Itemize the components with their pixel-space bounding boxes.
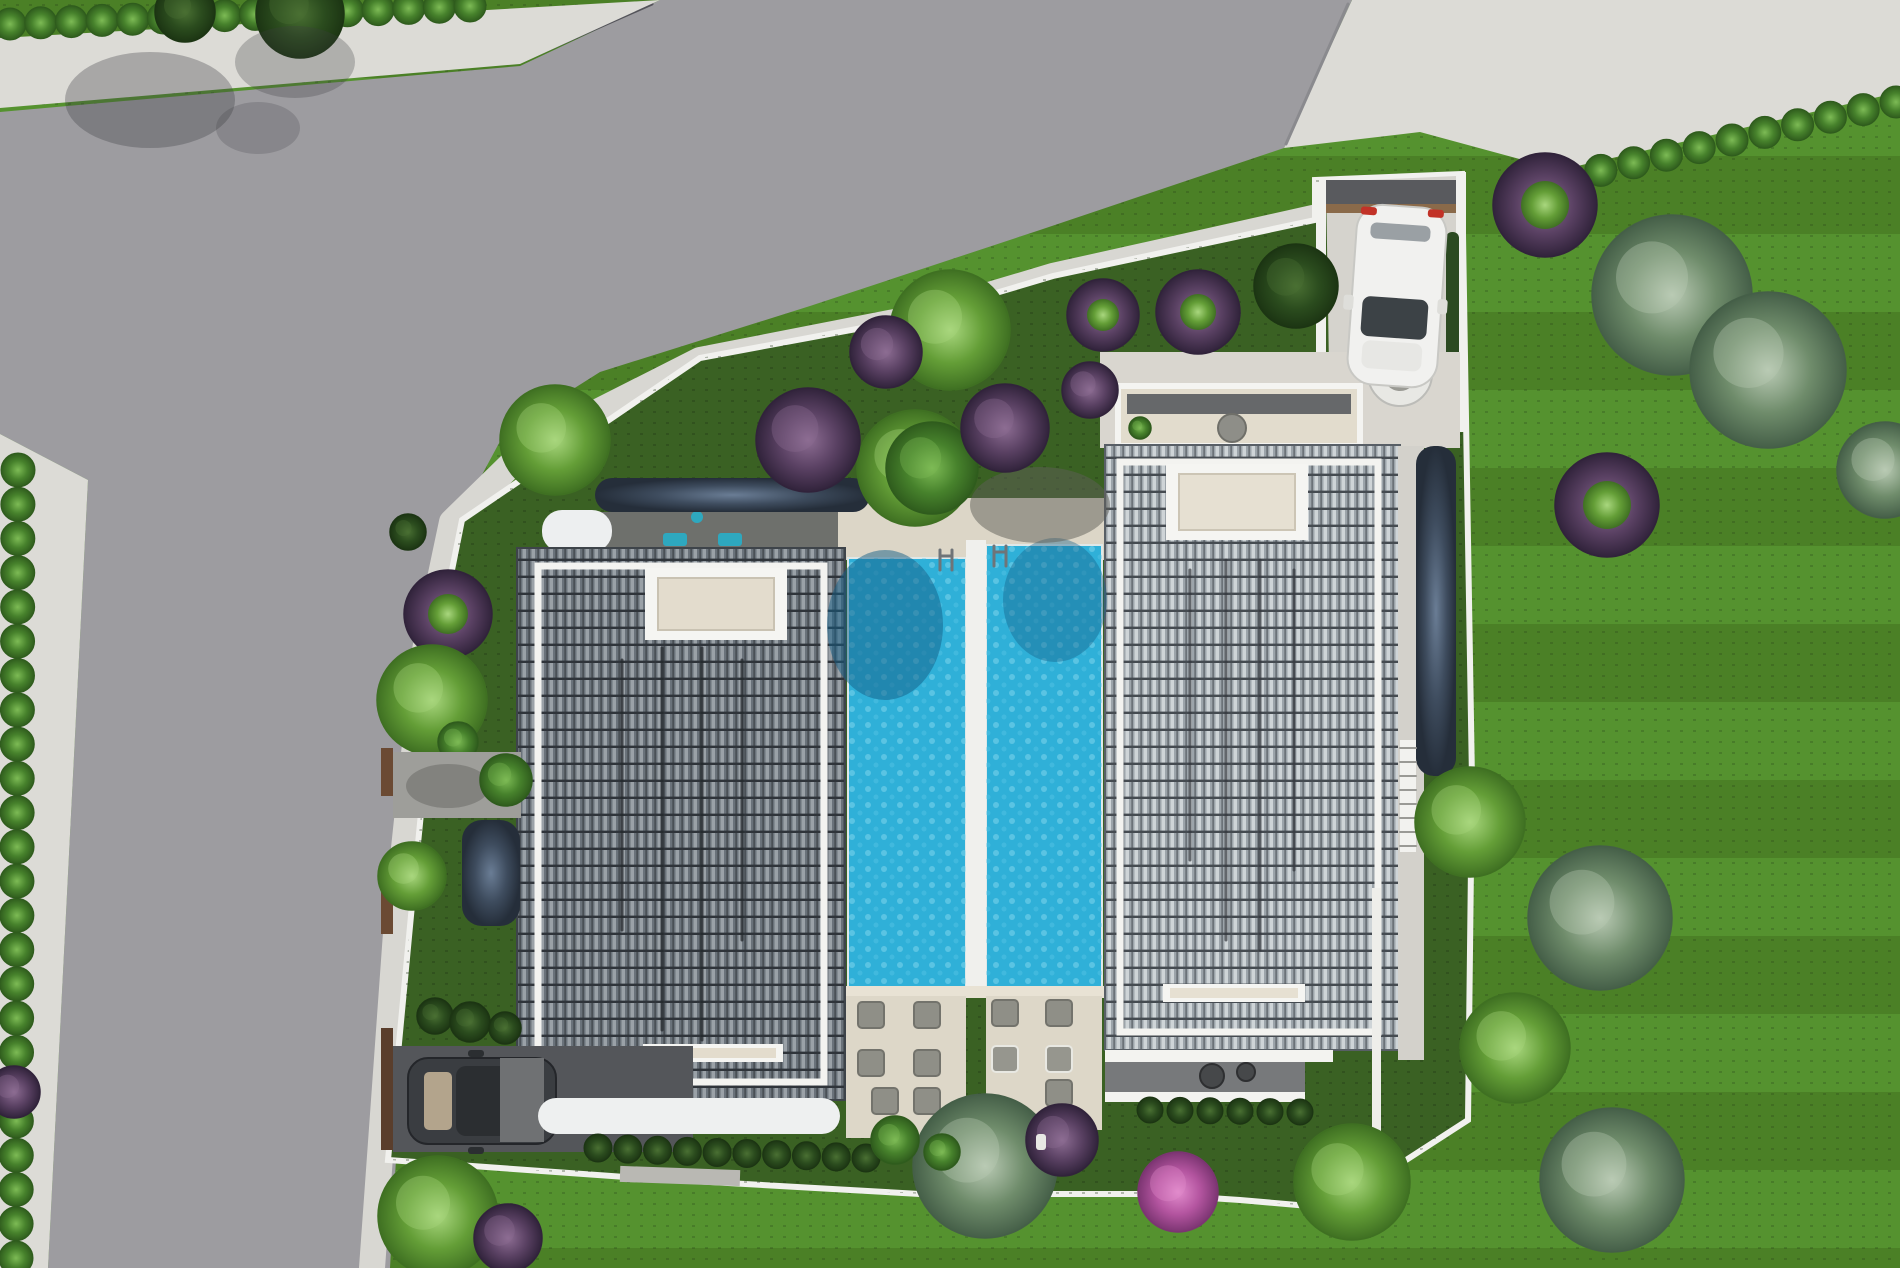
west-bush-dark-highlight bbox=[395, 520, 411, 536]
driveway-hedge-bush-highlight bbox=[456, 1009, 474, 1027]
tree-shadow-on-road-2 bbox=[235, 26, 355, 98]
bush-row-northeast bbox=[1749, 116, 1781, 148]
tree-west-light-highlight bbox=[388, 853, 419, 884]
light-tree-south-highlight bbox=[1311, 1143, 1363, 1195]
patio-furniture bbox=[992, 1046, 1018, 1072]
deck-tree-shadow bbox=[970, 467, 1110, 543]
pine-tree-west-highlight bbox=[394, 663, 444, 713]
bush-row-top bbox=[25, 7, 57, 39]
house-2-eave bbox=[1105, 1050, 1333, 1062]
hedge-row-left bbox=[0, 898, 34, 932]
hedge-row-left bbox=[1, 522, 35, 556]
car-white-taillight bbox=[1361, 206, 1378, 215]
terrace-2-shade-band bbox=[1127, 394, 1351, 414]
patio-furniture bbox=[1046, 1000, 1072, 1026]
car-dark-mirror bbox=[468, 1050, 484, 1057]
hedge-row-left bbox=[0, 864, 34, 898]
house-1-skylight-glass bbox=[658, 578, 774, 630]
car-white-hood bbox=[1361, 340, 1423, 372]
sage-cluster-east-highlight bbox=[1550, 870, 1615, 935]
house-2-lower-skylight-glass bbox=[1170, 988, 1298, 998]
purple-ring-bush-east-center bbox=[1583, 481, 1631, 529]
light-tree-east-highlight bbox=[1477, 1011, 1527, 1061]
pad-grass-tuft-highlight bbox=[488, 763, 511, 786]
hedge-row-left bbox=[1, 624, 35, 658]
terrace-planter bbox=[1200, 1064, 1224, 1088]
patio-furniture bbox=[872, 1088, 898, 1114]
hedge-row-left bbox=[0, 761, 34, 795]
bush-row-northeast bbox=[1814, 101, 1846, 133]
lavender-bed-west bbox=[462, 820, 520, 926]
tree-shadow-on-road-3 bbox=[216, 102, 300, 154]
patio-furniture bbox=[858, 1002, 884, 1028]
terrace-2-bush-highlight bbox=[1132, 421, 1142, 431]
hedge-row-left bbox=[0, 727, 34, 761]
purple-spiky-north-highlight bbox=[772, 405, 819, 452]
patio-furniture bbox=[1046, 1046, 1072, 1072]
hedge-row-left bbox=[0, 659, 34, 693]
car-dark-windshield bbox=[424, 1072, 452, 1130]
patio-furniture bbox=[914, 1088, 940, 1114]
pool-2-tree-shadow bbox=[1003, 538, 1107, 662]
bush-row-top bbox=[0, 8, 26, 40]
gate-post bbox=[381, 1028, 393, 1150]
bush-row-top bbox=[117, 3, 149, 35]
patio-furniture bbox=[1046, 1080, 1072, 1106]
site-plan-canvas bbox=[0, 0, 1900, 1268]
hedge-row-left bbox=[1, 556, 35, 590]
purple-spiky-southwest-highlight bbox=[484, 1215, 515, 1246]
house-2-skylight-glass bbox=[1179, 474, 1295, 530]
west-bush-highlight bbox=[444, 729, 462, 747]
patio-furniture bbox=[914, 1050, 940, 1076]
patio-furniture bbox=[914, 1002, 940, 1028]
terrace-1-curved-wall bbox=[542, 510, 612, 552]
car-dark-mirror bbox=[468, 1147, 484, 1154]
car-white-mirror bbox=[1437, 299, 1448, 315]
hedge-balls-house-2 bbox=[1227, 1098, 1253, 1124]
hedge-row-left bbox=[0, 1172, 33, 1206]
hedge-row-left bbox=[0, 1001, 34, 1035]
sage-tree-east-edge-highlight bbox=[1851, 438, 1894, 481]
pad-shadow bbox=[406, 764, 490, 808]
bush-row-northeast bbox=[1650, 139, 1682, 171]
bush-row-northeast bbox=[1716, 124, 1748, 156]
bush-row-northeast bbox=[1782, 109, 1814, 141]
sun-lounger-1 bbox=[663, 533, 687, 546]
hedge-balls-house-2 bbox=[1137, 1097, 1163, 1123]
hedge-row-left bbox=[0, 1207, 33, 1241]
car-white-taillight bbox=[1428, 209, 1445, 218]
hedge-row-left bbox=[0, 830, 34, 864]
house-1-side-terrace bbox=[500, 1058, 544, 1142]
hedge-balls-house-2 bbox=[1257, 1099, 1283, 1125]
tree-southwest-lawn-highlight bbox=[396, 1176, 450, 1230]
sage-tree-east-lawn-2-highlight bbox=[1713, 318, 1783, 388]
south-bed-bush-highlight bbox=[878, 1124, 900, 1146]
house-1-veranda bbox=[538, 1098, 840, 1134]
hedge-row-left bbox=[1, 487, 35, 521]
bush-row-northeast bbox=[1618, 147, 1650, 179]
sage-tree-east-lawn-highlight bbox=[1616, 241, 1688, 313]
pool-float bbox=[691, 511, 703, 523]
hedge-balls-house-1 bbox=[614, 1135, 642, 1163]
tree-on-east-wall-highlight bbox=[1432, 785, 1482, 835]
hedge-row-left bbox=[0, 967, 34, 1001]
hedge-balls-house-2 bbox=[1197, 1098, 1223, 1124]
lavender-hedge-east bbox=[1416, 446, 1456, 776]
driveway-hedge-bush-highlight bbox=[422, 1004, 438, 1020]
sun-lounger-2 bbox=[718, 533, 742, 546]
car-white-mirror bbox=[1343, 294, 1354, 310]
hedge-balls-house-1 bbox=[584, 1134, 612, 1162]
dark-tree-north-highlight bbox=[1267, 258, 1305, 296]
parking-entry-asphalt bbox=[1326, 180, 1458, 208]
garden-statue bbox=[1036, 1134, 1046, 1150]
site-plan-rendering bbox=[0, 0, 1900, 1268]
terrace-planter bbox=[1237, 1063, 1255, 1081]
bush-row-northeast bbox=[1847, 94, 1879, 126]
sage-tree-southeast-highlight bbox=[1562, 1132, 1627, 1197]
bush-row-northeast bbox=[1683, 132, 1715, 164]
hedge-balls-house-2 bbox=[1287, 1099, 1313, 1125]
car-white-windshield bbox=[1360, 296, 1429, 341]
hedge-balls-house-1 bbox=[673, 1137, 701, 1165]
hedge-balls-house-2 bbox=[1167, 1097, 1193, 1123]
hedge-balls-house-1 bbox=[792, 1142, 820, 1170]
patio-furniture bbox=[992, 1000, 1018, 1026]
hedge-row-left bbox=[0, 796, 34, 830]
hedge-row-left bbox=[0, 1035, 34, 1069]
purple-ring-bush-northeast-center bbox=[1521, 181, 1569, 229]
pool-1-tree-shadow bbox=[827, 550, 943, 700]
terrace-2-round-table bbox=[1218, 414, 1246, 442]
magenta-coral-bush-highlight bbox=[1150, 1165, 1186, 1201]
purple-spiky-north-2-highlight bbox=[974, 399, 1014, 439]
gate-post bbox=[381, 748, 393, 796]
hedge-balls-house-1 bbox=[733, 1140, 761, 1168]
hedge-row-left bbox=[0, 1138, 33, 1172]
bush-row-top bbox=[55, 6, 87, 38]
bushy-tree-north-highlight bbox=[900, 437, 941, 478]
pool-divider-wall bbox=[966, 540, 986, 996]
scene-root bbox=[0, 0, 1900, 1268]
purple-ring-bush-north-center bbox=[1087, 299, 1119, 331]
purple-bush-north-highlight bbox=[861, 328, 893, 360]
purple-ring-bush-north-2-center bbox=[1180, 294, 1216, 330]
hedge-row-left bbox=[0, 693, 34, 727]
hedge-row-left bbox=[1, 590, 35, 624]
terrace-1-floor bbox=[598, 512, 838, 550]
hedge-balls-house-1 bbox=[822, 1143, 850, 1171]
driveway-hedge-bush-highlight bbox=[494, 1017, 508, 1031]
hedge-balls-house-1 bbox=[644, 1136, 672, 1164]
hedge-balls-house-1 bbox=[763, 1141, 791, 1169]
pine-tree-north-highlight bbox=[517, 403, 567, 453]
purple-ring-bush-west-center bbox=[428, 594, 468, 634]
bush-row-top bbox=[86, 4, 118, 36]
hedge-row-left bbox=[1, 453, 35, 487]
south-bed-bush-2-highlight bbox=[929, 1140, 945, 1156]
patio-furniture bbox=[858, 1050, 884, 1076]
hedge-balls-house-1 bbox=[703, 1138, 731, 1166]
tree-shadow-on-road bbox=[65, 52, 235, 148]
wall-ladder bbox=[1400, 740, 1416, 852]
purple-bush-north-2-highlight bbox=[1070, 371, 1095, 396]
hedge-row-left bbox=[0, 933, 34, 967]
